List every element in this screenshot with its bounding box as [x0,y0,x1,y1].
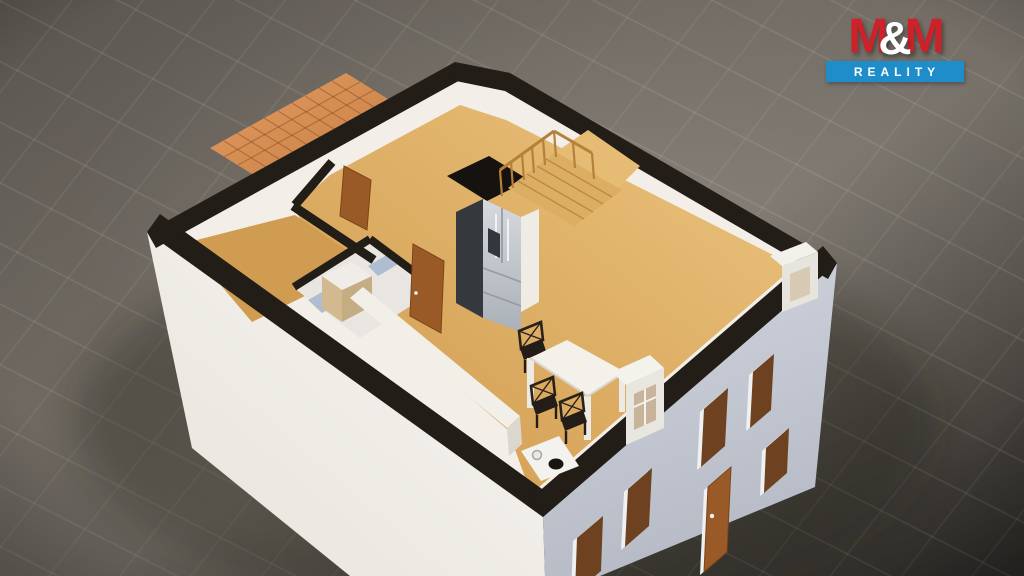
fridge-side [456,199,483,318]
logo-reality-text: REALITY [854,65,940,79]
logo-mm: M & M [826,16,964,58]
render-canvas: M & M REALITY [0,0,1024,576]
door-handle [414,291,418,295]
cooktop-burner-small [533,451,542,460]
door-knob [710,514,714,518]
logo-reality-bar: REALITY [826,61,964,82]
mm-reality-logo: M & M REALITY [826,16,964,82]
tall-cabinet [521,209,539,312]
cooktop-burner [549,459,564,470]
house-render [0,0,1024,576]
logo-ampersand: & [878,18,911,58]
